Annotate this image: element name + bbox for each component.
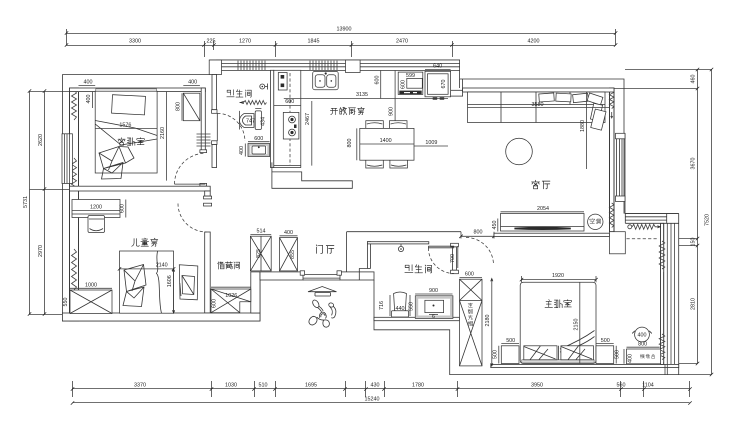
svg-text:600: 600 xyxy=(285,99,294,105)
svg-text:400: 400 xyxy=(284,230,293,236)
svg-text:2054: 2054 xyxy=(537,206,549,212)
svg-text:600: 600 xyxy=(401,80,407,89)
svg-text:430: 430 xyxy=(371,383,380,389)
svg-text:700: 700 xyxy=(450,254,456,263)
svg-text:1009: 1009 xyxy=(425,140,437,146)
svg-text:500: 500 xyxy=(506,338,515,344)
svg-text:500: 500 xyxy=(493,350,499,359)
svg-text:514: 514 xyxy=(257,229,266,235)
svg-text:550: 550 xyxy=(63,298,69,307)
svg-text:2620: 2620 xyxy=(38,134,44,146)
svg-text:440: 440 xyxy=(396,306,405,312)
svg-text:2140: 2140 xyxy=(156,262,168,268)
svg-text:670: 670 xyxy=(441,80,447,89)
svg-text:3300: 3300 xyxy=(129,39,141,45)
svg-text:1920: 1920 xyxy=(552,273,564,279)
svg-text:560: 560 xyxy=(617,383,626,389)
svg-text:3580: 3580 xyxy=(532,102,544,108)
svg-text:800: 800 xyxy=(347,139,353,148)
svg-text:13900: 13900 xyxy=(337,27,352,33)
svg-text:600: 600 xyxy=(374,76,380,85)
svg-text:1026: 1026 xyxy=(225,293,237,299)
svg-text:400: 400 xyxy=(84,79,93,85)
svg-text:716: 716 xyxy=(379,301,385,310)
svg-text:855: 855 xyxy=(290,250,296,259)
svg-text:510: 510 xyxy=(259,383,268,389)
svg-text:600: 600 xyxy=(465,272,474,278)
svg-text:2180: 2180 xyxy=(485,315,491,327)
svg-text:3670: 3670 xyxy=(691,158,697,170)
svg-text:1845: 1845 xyxy=(308,39,320,45)
svg-text:825: 825 xyxy=(256,249,262,258)
svg-text:1104: 1104 xyxy=(642,383,654,389)
svg-text:1695: 1695 xyxy=(305,383,317,389)
svg-text:225: 225 xyxy=(207,39,216,45)
svg-text:800: 800 xyxy=(474,229,483,235)
svg-text:1030: 1030 xyxy=(225,383,237,389)
svg-text:3950: 3950 xyxy=(531,383,543,389)
svg-text:150: 150 xyxy=(691,238,697,247)
svg-text:800: 800 xyxy=(176,102,182,111)
svg-text:450: 450 xyxy=(492,221,498,230)
svg-text:6: 6 xyxy=(432,314,435,320)
svg-text:599: 599 xyxy=(406,73,415,79)
svg-text:400: 400 xyxy=(239,146,245,155)
svg-text:550: 550 xyxy=(409,302,415,311)
svg-text:5731: 5731 xyxy=(23,196,29,208)
svg-text:400: 400 xyxy=(628,354,634,363)
svg-text:1880: 1880 xyxy=(580,120,586,132)
svg-text:1270: 1270 xyxy=(239,39,251,45)
svg-text:500: 500 xyxy=(601,338,610,344)
svg-text:460: 460 xyxy=(691,75,697,84)
svg-text:1606: 1606 xyxy=(167,275,173,287)
svg-text:7520: 7520 xyxy=(705,214,711,226)
svg-text:4200: 4200 xyxy=(528,39,540,45)
svg-text:1576: 1576 xyxy=(119,122,131,128)
svg-text:800: 800 xyxy=(638,342,647,348)
svg-text:1780: 1780 xyxy=(412,383,424,389)
svg-text:2810: 2810 xyxy=(691,298,697,310)
svg-text:640: 640 xyxy=(433,64,442,70)
svg-text:15240: 15240 xyxy=(365,397,380,403)
svg-text:2467: 2467 xyxy=(305,113,311,125)
svg-text:1400: 1400 xyxy=(380,138,392,144)
svg-text:1200: 1200 xyxy=(90,205,102,211)
svg-text:900: 900 xyxy=(389,107,395,116)
svg-text:600: 600 xyxy=(212,299,218,308)
svg-text:600: 600 xyxy=(254,136,263,142)
svg-text:2160: 2160 xyxy=(160,127,166,139)
svg-text:900: 900 xyxy=(429,288,438,294)
svg-text:747: 747 xyxy=(246,118,255,124)
svg-text:2470: 2470 xyxy=(396,39,408,45)
svg-text:3370: 3370 xyxy=(134,383,146,389)
svg-text:2150: 2150 xyxy=(573,319,579,331)
svg-text:3135: 3135 xyxy=(356,92,368,98)
svg-text:2970: 2970 xyxy=(38,245,44,257)
svg-text:400: 400 xyxy=(638,333,647,339)
svg-text:400: 400 xyxy=(188,79,197,85)
svg-text:600: 600 xyxy=(120,204,126,213)
svg-text:500: 500 xyxy=(614,350,620,359)
svg-text:434: 434 xyxy=(261,117,267,126)
svg-text:400: 400 xyxy=(86,95,92,104)
svg-text:1000: 1000 xyxy=(85,282,97,288)
